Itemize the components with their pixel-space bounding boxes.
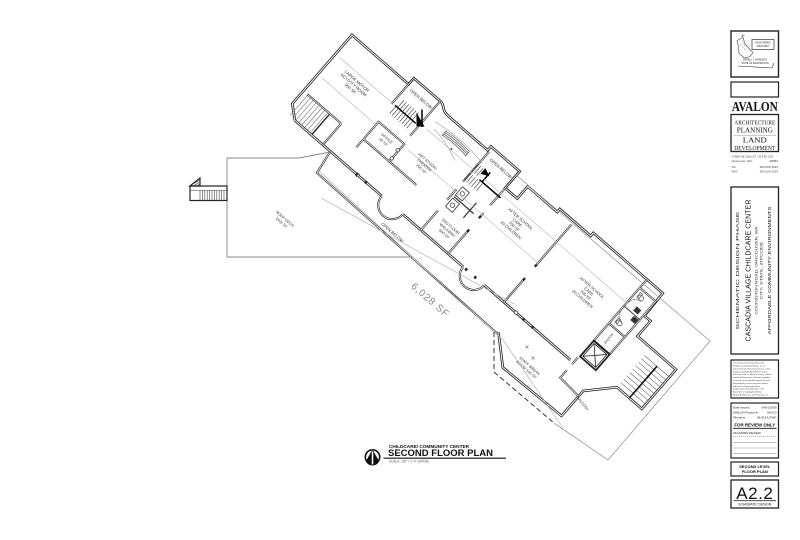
svg-text:SCHEMATIC DESIGN: SCHEMATIC DESIGN [738, 502, 771, 506]
svg-text:04/01/2005: 04/01/2005 [761, 406, 776, 410]
svg-text:STATE OF WASHINGTON: STATE OF WASHINGTON [741, 62, 769, 65]
svg-text:authorization of the Architect: authorization of the Architect. This [733, 388, 764, 391]
svg-text:FOR REVIEW ONLY: FOR REVIEW ONLY [734, 423, 775, 428]
svg-text:A2.2: A2.2 [736, 484, 773, 503]
svg-text:AVALON: AVALON [732, 99, 778, 114]
svg-text:DARELL J. DAVIDSON: DARELL J. DAVIDSON [743, 59, 767, 62]
svg-text:05-013A.DWG: 05-013A.DWG [757, 416, 777, 420]
svg-text:Tel:: Tel: [732, 165, 737, 169]
svg-text:LAND: LAND [743, 137, 767, 145]
svg-text:instrument of professional ser: instrument of professional service, is t… [733, 367, 771, 370]
svg-text:SCALE: 1/8" = 1'-0" (24X36): SCALE: 1/8" = 1'-0" (24X36) [389, 460, 429, 464]
svg-text:PLANNING: PLANNING [737, 127, 773, 135]
svg-text:FLOOR PLAN: FLOOR PLAN [742, 469, 768, 474]
svg-text:FAX:: FAX: [732, 170, 739, 174]
svg-text:98682: 98682 [770, 159, 779, 163]
svg-text:360.695.4945: 360.695.4945 [760, 165, 779, 169]
svg-text:AFFORDABLE COMMUNITY ENVIRONME: AFFORDABLE COMMUNITY ENVIRONMENTS [767, 207, 772, 335]
svg-text:DEVELOPMENT: DEVELOPMENT [734, 145, 775, 152]
svg-text:document is Copyright 2005 by: document is Copyright 2005 by [733, 391, 763, 394]
svg-text:Vancouver, WA.: Vancouver, WA. [732, 159, 753, 163]
svg-text:05-013: 05-013 [767, 411, 777, 415]
svg-text:This document and the ideas an: This document and the ideas and [733, 362, 765, 365]
svg-text:04/13/2005 REVIEW: 04/13/2005 REVIEW [733, 431, 761, 435]
svg-text:for use on a specifically name: for use on a specifically named site and [733, 379, 770, 382]
svg-text:SECOND FLOOR PLAN: SECOND FLOOR PLAN [388, 448, 493, 458]
svg-text:AVALON Project #:: AVALON Project #: [733, 411, 758, 415]
svg-text:not generally, nor for any oth: not generally, nor for any other project [733, 382, 768, 385]
svg-text:Date Issued:: Date Issued: [733, 406, 750, 410]
svg-text:Avalon Architecture and Planni: Avalon Architecture and Planning, LLC [733, 394, 769, 397]
svg-text:COVINGTON ROAD, VANCOUVER, WA: COVINGTON ROAD, VANCOUVER, WA [755, 225, 759, 314]
svg-text:written authorization; has bee: written authorization; has been supplied [733, 376, 770, 379]
svg-text:CASCADIA VILLAGE CHILDCARE CEN: CASCADIA VILLAGE CHILDCARE CENTER [746, 200, 753, 342]
svg-text:Filename:: Filename: [733, 416, 746, 420]
svg-text:without the expressed written: without the expressed written [733, 385, 761, 388]
svg-text:SCHEMATIC DESIGN PHASE: SCHEMATIC DESIGN PHASE [735, 211, 740, 329]
svg-text:not to be used, in whole or in: not to be used, in whole or in part, wit… [733, 373, 772, 376]
svg-text:ARCHITECT: ARCHITECT [756, 45, 770, 48]
svg-text:designs incorporated herein, a: designs incorporated herein, as an [733, 365, 766, 368]
svg-text:360.254.3234: 360.254.3234 [760, 170, 779, 174]
svg-text:REGISTERED: REGISTERED [756, 43, 771, 45]
svg-text:CITY, STATE, ZIPCODE: CITY, STATE, ZIPCODE [760, 242, 764, 300]
svg-text:property of Avalon Architectur: property of Avalon Architecture and is [733, 370, 767, 373]
svg-text:ARCHITECTURE: ARCHITECTURE [734, 120, 775, 127]
